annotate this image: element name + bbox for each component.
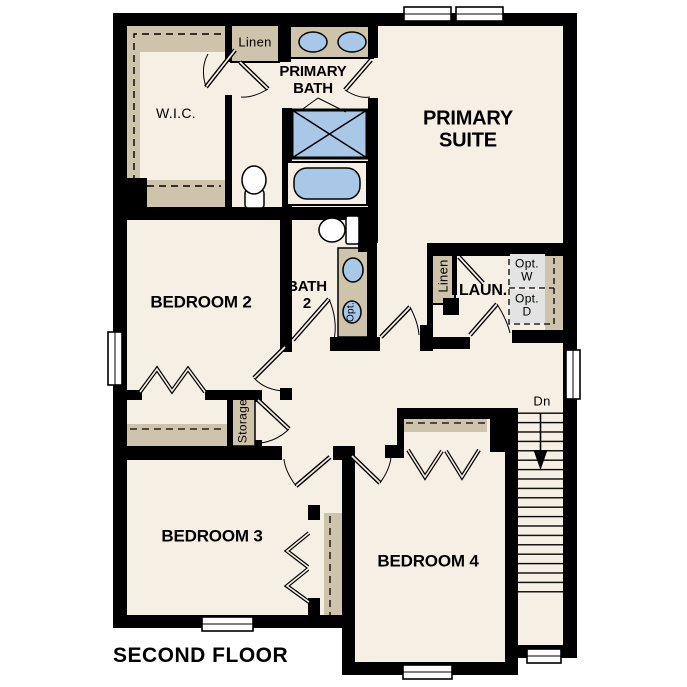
room-label-bedroom3: BEDROOM 3 [161,526,262,545]
room-label-bath2: BATH 2 [287,279,327,313]
wall-bed4-closet-top [397,408,490,419]
window-primary-suite-2 [456,7,503,21]
wall-linen-laundry-right [452,250,457,295]
wall-suite-left-upper [368,13,378,58]
wall-hall-bottom-left [113,446,282,460]
wall-post-laundry [443,298,459,315]
bedroom2-closet-shelf [127,424,227,446]
room-label-primary-bath: PRIMARY BATH [279,64,346,98]
wall-exterior-right [563,13,577,658]
wall-laundry-left [427,243,433,337]
room-label-primary-suite: PRIMARY SUITE [423,108,513,153]
toilet-bath2-tank [346,216,359,244]
closet-label-linen-laundry: Linen [437,259,452,292]
wall-wic-right [225,95,232,213]
wall-laundry-bottom [433,337,470,349]
wall-bed4-stair-divider [505,448,518,662]
wall-post-stairs [490,408,518,452]
toilet-wc-bowl [242,166,266,194]
wic-shelf-top [127,26,225,52]
bedroom3-closet-shelf [324,513,342,619]
wall-closet-storage-divider [227,397,233,446]
wall-bedroom2-closet-right [205,390,262,400]
wall-exterior-left [113,13,127,628]
wall-stair-top [512,330,563,343]
wall-bedroom2-right-stub [280,388,292,400]
wall-bed3-closet-stub-top [308,505,320,520]
window-stairwell-bottom [527,649,561,663]
primary-sink-left [299,32,327,52]
stair-label-dn: Dn [533,395,550,410]
window-bedroom2 [108,332,122,385]
room-label-bedroom4: BEDROOM 4 [377,551,478,570]
window-primary-suite-1 [404,7,451,21]
wall-bath2-bottom [330,337,380,351]
tub [294,168,360,199]
wall-post-vestibule [358,217,377,252]
wall-bedroom2-closet-left [113,390,142,400]
fixture-label-optional-sink: Opt. [345,302,356,322]
window-bedroom3 [202,617,253,631]
primary-sink-right [338,32,366,52]
window-bedroom4 [403,665,452,679]
wall-bedroom3-4-divider [342,453,355,675]
wall-post-wic [113,178,147,210]
bath2-sink [343,258,363,282]
stairs [518,413,563,601]
window-stair-landing [566,350,580,399]
room-label-laundry: LAUN. [459,282,507,300]
appliance-label-opt-washer: Opt. W [515,258,539,285]
floor-plan: W.I.C. Linen PRIMARY BATH PRIMARY SUITE … [0,0,687,687]
wall-linen-right [278,13,291,62]
plan-title: SECOND FLOOR [113,644,288,668]
wall-exterior-top [113,13,577,26]
closet-label-linen-upper: Linen [238,36,271,51]
floor-plan-drawing [0,0,687,687]
room-label-wic: W.I.C. [156,106,196,122]
toilet-bath2-bowl [319,218,345,242]
wall-vestibule-left [367,250,377,337]
wic-shelf-left [127,26,140,196]
closet-label-storage: Storage [236,399,249,443]
wall-bed4-closet-left [397,410,404,448]
appliance-label-opt-dryer: Opt. D [515,293,539,320]
room-label-bedroom2: BEDROOM 2 [150,292,251,311]
